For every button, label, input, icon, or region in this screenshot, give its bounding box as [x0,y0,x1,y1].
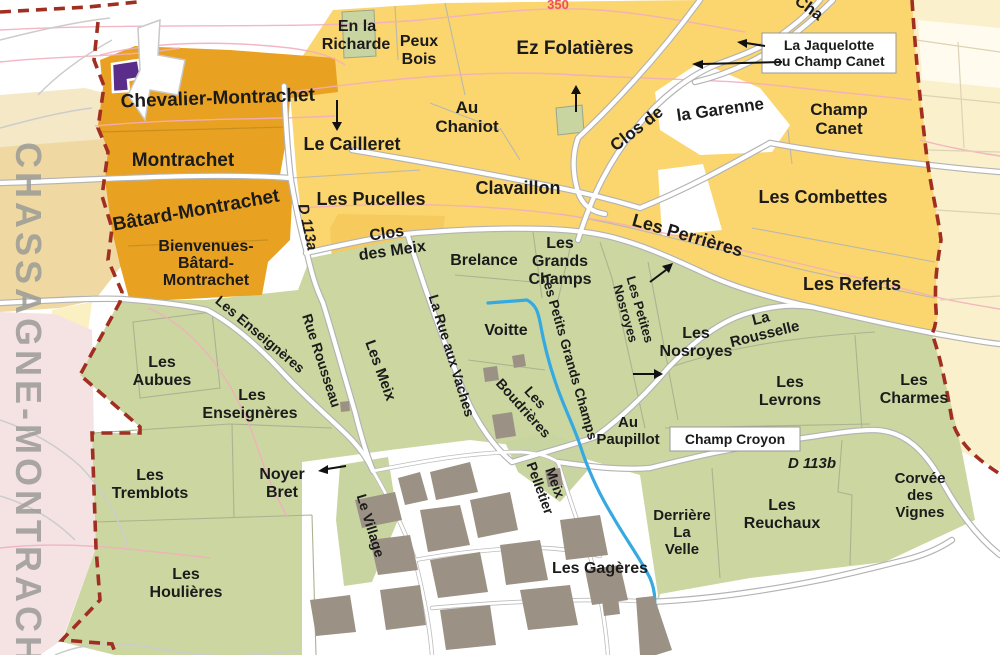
brelance-label: Brelance [450,252,518,269]
svg-text:Les: Les [768,497,796,514]
champ-canet-label: Champ Canet [810,100,868,138]
chassagne-montrachet-label: CHASSAGNE-MONTRACHET [8,142,49,655]
building [470,492,518,538]
svg-text:Houlières: Houlières [150,584,223,601]
ez-folatieres-label: Ez Folatières [516,38,633,59]
svg-text:Au: Au [618,414,638,431]
svg-text:ou Champ Canet: ou Champ Canet [773,53,885,69]
boundary-top-left [0,2,137,12]
building [380,585,426,630]
building [310,595,356,636]
svg-text:Les: Les [172,566,200,583]
les-combettes-label: Les Combettes [758,187,887,207]
svg-text:Charmes: Charmes [880,390,949,407]
svg-text:Champs: Champs [528,271,591,288]
svg-text:Levrons: Levrons [759,392,821,409]
montrachet-label: Montrachet [132,150,235,171]
building [520,585,578,630]
building [512,354,526,368]
les-referts-label: Les Referts [803,274,901,294]
svg-text:Les: Les [136,467,164,484]
svg-text:Enseignères: Enseignères [202,405,297,422]
building [500,540,548,585]
building [560,515,608,560]
champ-croyon-label: Champ Croyon [685,431,785,447]
svg-text:La: La [673,524,691,541]
building [483,366,499,382]
svg-text:Bois: Bois [402,51,437,68]
svg-text:Champ: Champ [810,100,868,119]
svg-text:Paupillot: Paupillot [596,431,659,448]
le-cailleret-label: Le Cailleret [303,134,400,154]
svg-text:Grands: Grands [532,253,588,270]
svg-text:Les: Les [682,325,710,342]
svg-text:Montrachet: Montrachet [163,272,250,289]
peux-bois-label: Peux Bois [400,33,438,68]
svg-text:Bienvenues-: Bienvenues- [158,238,253,255]
building [440,605,496,650]
voitte-label: Voitte [484,322,527,339]
svg-text:Vignes: Vignes [896,504,945,521]
svg-text:Noyer: Noyer [259,466,304,483]
svg-text:En la: En la [338,18,376,35]
clavaillon-label: Clavaillon [475,178,560,198]
svg-text:Velle: Velle [665,541,699,558]
svg-text:Derrière: Derrière [653,507,711,524]
noyer-bret-label: Noyer Bret [259,466,304,501]
svg-text:Les: Les [900,372,928,389]
svg-text:Canet: Canet [815,119,863,138]
svg-text:Richarde: Richarde [322,36,391,53]
svg-text:des: des [907,487,933,504]
svg-text:Les: Les [148,354,176,371]
vineyard-map: CHASSAGNE-MONTRACHET Chevalier-Montrache… [0,0,1000,655]
svg-text:Chaniot: Chaniot [435,117,499,136]
svg-text:Tremblots: Tremblots [112,485,189,502]
svg-text:Reuchaux: Reuchaux [744,515,821,532]
les-gageres-label: Les Gagères [552,560,648,577]
svg-text:Les: Les [238,387,266,404]
svg-text:Les: Les [776,374,804,391]
svg-text:Aubues: Aubues [133,372,192,389]
svg-text:Nosroyes: Nosroyes [660,343,733,360]
svg-text:Corvée: Corvée [895,470,946,487]
building [430,552,488,598]
svg-text:Bret: Bret [266,484,299,501]
map-canvas: CHASSAGNE-MONTRACHET Chevalier-Montrache… [0,0,1000,655]
building [602,598,620,616]
folatieres-green-parcel [556,105,584,135]
svg-text:La Jaquelotte: La Jaquelotte [784,37,874,53]
building [492,412,516,439]
svg-text:Peux: Peux [400,33,438,50]
d113b-label: D 113b [788,455,836,472]
les-pucelles-label: Les Pucelles [316,189,425,209]
svg-text:Au: Au [456,98,479,117]
contour-350-label: 350 [547,0,569,12]
svg-text:Les: Les [546,235,574,252]
jaquelotte-label: La Jaquelotte ou Champ Canet [773,37,885,69]
building [636,596,672,655]
svg-text:Bâtard-: Bâtard- [178,255,234,272]
